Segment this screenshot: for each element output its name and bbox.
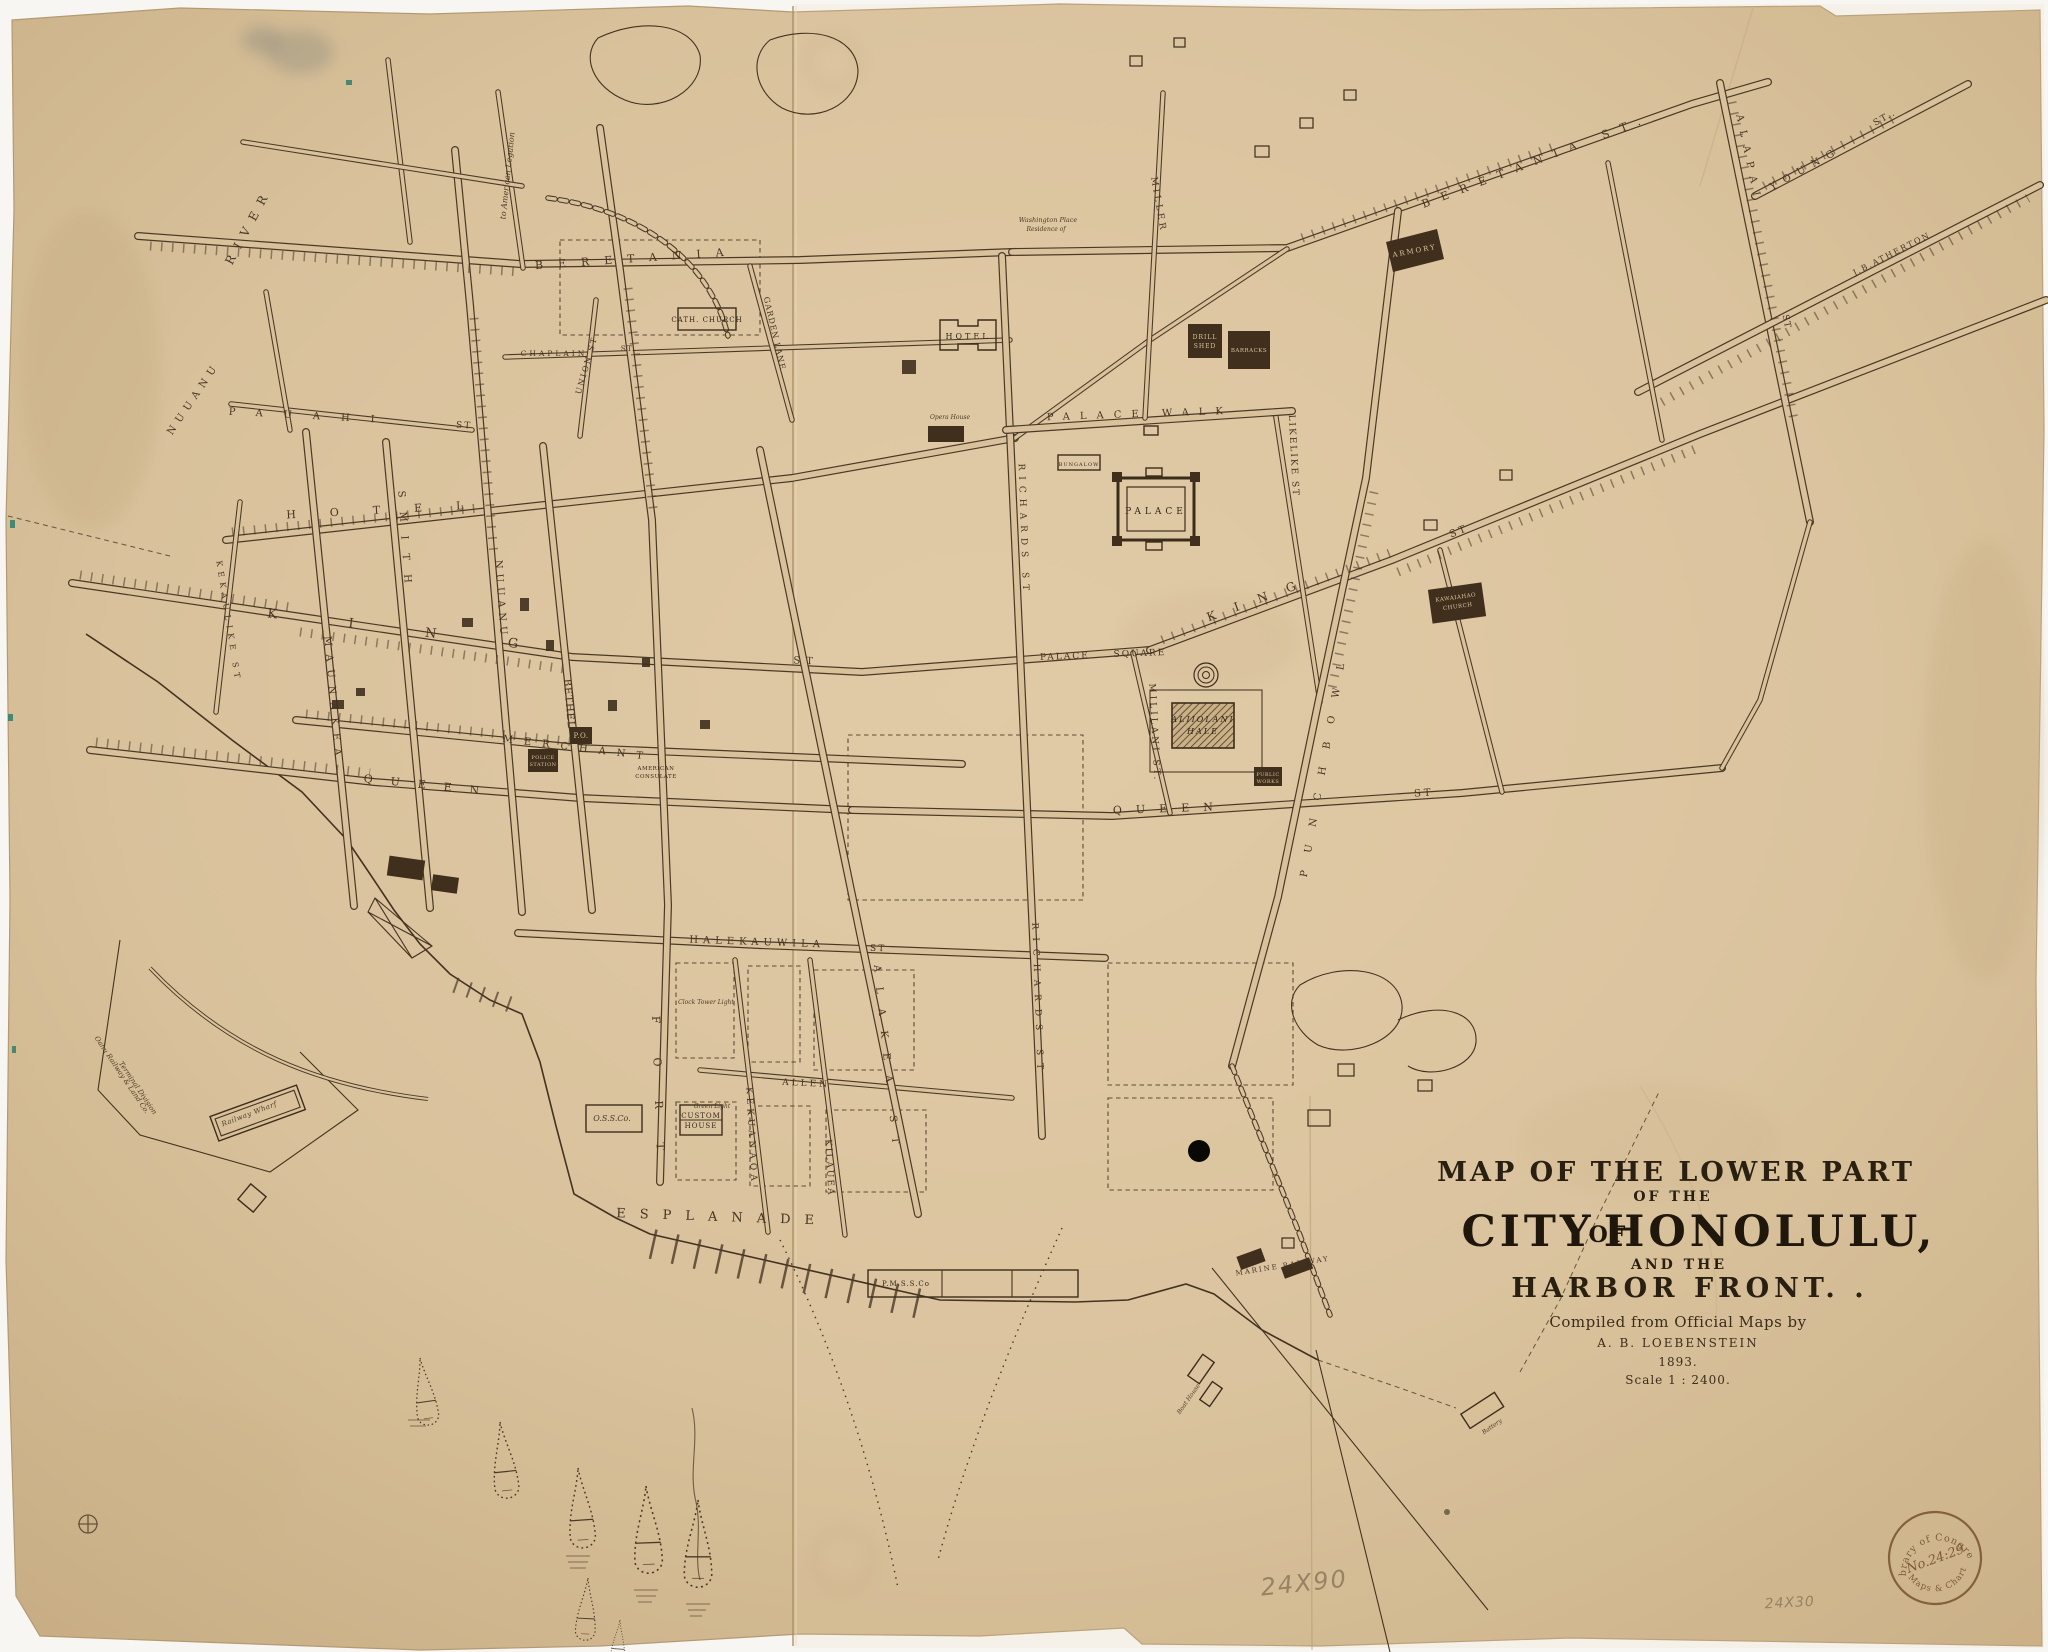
- title-line-2: OF THE: [1633, 1189, 1712, 1205]
- building-label-bungalow: BUNGALOW: [1059, 462, 1099, 468]
- title-line-4: AND THE: [1630, 1257, 1727, 1273]
- street-label-halekauwila-st: ST: [870, 944, 887, 955]
- building-label-drill-shed-2: SHED: [1194, 343, 1217, 350]
- honolulu-map-svg: Library of Congress No.24:29 Maps & Char…: [0, 0, 2048, 1652]
- street-label-palace-square-1: PALACE: [1040, 651, 1090, 663]
- building-label-drill-shed-1: DRILL: [1193, 334, 1218, 341]
- building-label-public-works-1: PUBLIC: [1256, 772, 1279, 778]
- title-line-8: 1893.: [1658, 1355, 1697, 1369]
- plus-circle-mark: [78, 1515, 98, 1533]
- building-label-police-2: STATION: [529, 762, 556, 768]
- pencil-size-note-2: 24X30: [1764, 1594, 1815, 1613]
- building-label-barracks: BARRACKS: [1231, 348, 1267, 354]
- building-opera-house: [928, 426, 964, 442]
- street-label-palace-square-2: SQUARE: [1113, 648, 1166, 660]
- building-label-post-office: P.O.: [573, 732, 588, 740]
- building-label-aliiolani-2: HALE: [1186, 727, 1219, 736]
- street-label-chaplain: CHAPLAIN: [521, 349, 588, 358]
- street-label-king-st: ST: [793, 656, 819, 668]
- title-line-1: MAP OF THE LOWER PART: [1437, 1157, 1915, 1188]
- street-label-chaplain-st: ST.: [621, 344, 635, 353]
- building-label-police-1: POLICE: [531, 755, 554, 761]
- building-label-palace: PALACE: [1125, 507, 1187, 517]
- building-label-custom-house-2: HOUSE: [685, 1122, 718, 1130]
- title-line-7: A. B. LOEBENSTEIN: [1596, 1336, 1759, 1350]
- black-dot: [1188, 1140, 1210, 1162]
- place-american-consulate-1: AMERICAN: [637, 766, 675, 772]
- building-label-custom-house-1: CUSTOM: [681, 1112, 721, 1120]
- title-line-5: HARBOR FRONT. .: [1511, 1273, 1868, 1304]
- place-washington-place: Washington Place: [1019, 216, 1078, 224]
- building-label-public-works-2: WORKS: [1257, 779, 1280, 785]
- place-washington-place-2: Residence of: [1026, 226, 1068, 233]
- place-opera-house: Opera House: [930, 414, 970, 421]
- title-line-9: Scale 1 : 2400.: [1625, 1373, 1731, 1387]
- building-label-oss: O.S.S.Co.: [593, 1114, 630, 1123]
- place-american-consulate-2: CONSULATE: [635, 774, 676, 780]
- building-label-pmss: P.M.S.S.Co: [882, 1280, 930, 1288]
- street-label-queen-east-st: ST: [1414, 787, 1434, 799]
- building-label-hotel: HOTEL: [945, 332, 990, 341]
- note-clock-tower-light: Clock Tower Light: [678, 999, 734, 1006]
- map-scan: Library of Congress No.24:29 Maps & Char…: [0, 0, 2048, 1652]
- note-green-light: Green Light: [694, 1103, 731, 1110]
- building-label-aliiolani-1: ALIIOLANI: [1170, 715, 1234, 724]
- street-label-pauahi-st: ST: [456, 421, 473, 432]
- title-line-6: Compiled from Official Maps by: [1549, 1313, 1806, 1331]
- building-drill-shed: [1188, 324, 1222, 358]
- building-label-cath-church: CATH. CHURCH: [671, 316, 742, 324]
- title-line-3c: HONOLULU,: [1604, 1207, 1937, 1257]
- title-line-3a: CITY: [1461, 1207, 1594, 1257]
